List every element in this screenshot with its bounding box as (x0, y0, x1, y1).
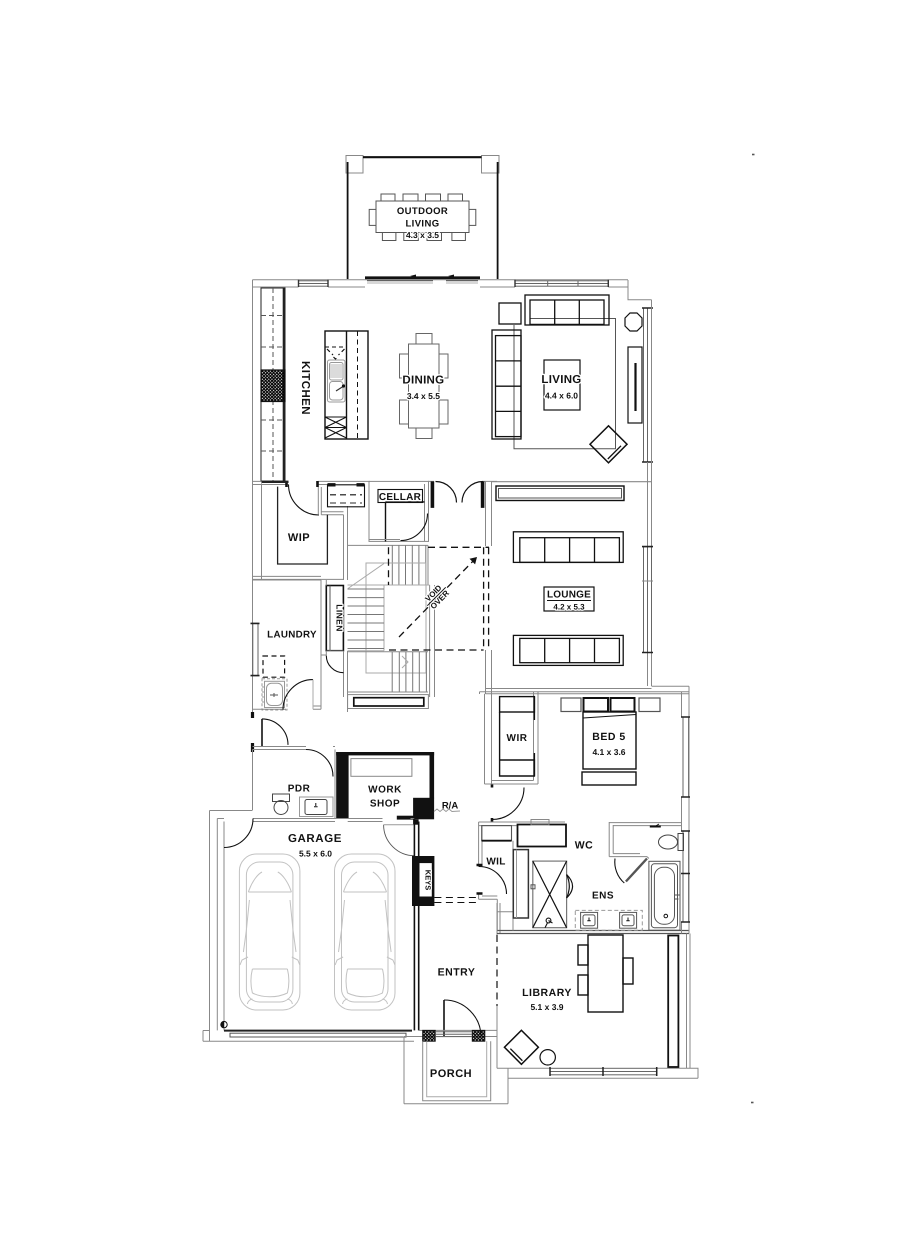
svg-text:CELLAR: CELLAR (379, 492, 422, 503)
svg-text:WIL: WIL (486, 857, 505, 868)
svg-text:OUTDOOR: OUTDOOR (397, 206, 448, 217)
svg-text:4.4 x 6.0: 4.4 x 6.0 (545, 391, 578, 401)
svg-text:GARAGE: GARAGE (288, 833, 342, 845)
svg-text:DINING: DINING (402, 375, 444, 387)
svg-text:WORK: WORK (368, 785, 402, 796)
svg-text:PORCH: PORCH (430, 1068, 472, 1080)
svg-text:WIP: WIP (288, 532, 310, 544)
svg-text:KITCHEN: KITCHEN (299, 361, 311, 415)
svg-text:SHOP: SHOP (370, 799, 400, 810)
svg-text:5.5 x 6.0: 5.5 x 6.0 (299, 849, 332, 859)
svg-text:LIVING: LIVING (405, 219, 439, 230)
svg-text:4.1 x 3.6: 4.1 x 3.6 (592, 747, 625, 757)
svg-text:BED 5: BED 5 (592, 731, 625, 743)
svg-text:LINEN: LINEN (335, 604, 345, 632)
svg-text:PDR: PDR (288, 784, 311, 795)
svg-text:WIR: WIR (507, 733, 528, 744)
svg-text:ENS: ENS (592, 891, 614, 902)
svg-text:4.3 x 3.5: 4.3 x 3.5 (406, 230, 439, 240)
svg-text:3.4 x 5.5: 3.4 x 5.5 (407, 391, 440, 401)
svg-text:LOUNGE: LOUNGE (547, 590, 591, 601)
svg-text:LIBRARY: LIBRARY (522, 987, 572, 999)
svg-text:5.1 x 3.9: 5.1 x 3.9 (530, 1002, 563, 1012)
svg-text:KEYS: KEYS (424, 870, 433, 890)
svg-text:WC: WC (575, 839, 594, 851)
svg-text:4.2 x 5.3: 4.2 x 5.3 (553, 603, 585, 612)
svg-text:LIVING: LIVING (541, 374, 581, 386)
svg-text:LAUNDRY: LAUNDRY (267, 630, 317, 641)
svg-text:ENTRY: ENTRY (438, 967, 476, 979)
